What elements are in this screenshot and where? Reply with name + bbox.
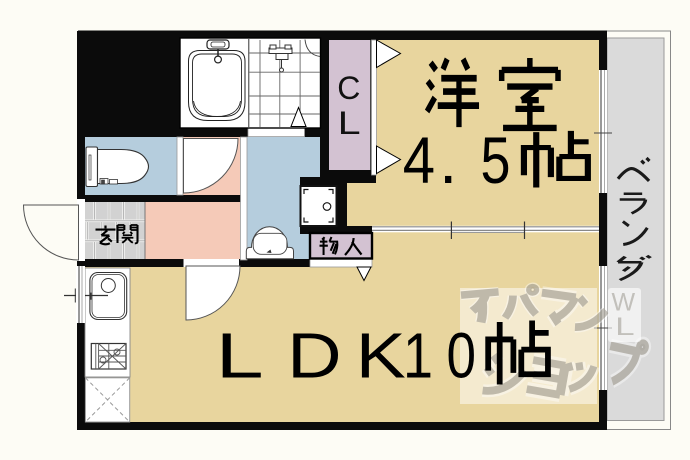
svg-text:4: 4 bbox=[403, 123, 435, 197]
svg-text:K: K bbox=[356, 320, 406, 392]
svg-text:D: D bbox=[287, 320, 342, 392]
svg-text:5: 5 bbox=[481, 123, 511, 197]
svg-text:.: . bbox=[439, 123, 457, 197]
svg-text:L: L bbox=[338, 105, 361, 141]
svg-text:0: 0 bbox=[447, 320, 477, 392]
svg-text:L: L bbox=[216, 320, 264, 392]
svg-text:C: C bbox=[337, 70, 360, 106]
svg-text:L: L bbox=[615, 313, 635, 341]
svg-text:1: 1 bbox=[403, 320, 433, 392]
